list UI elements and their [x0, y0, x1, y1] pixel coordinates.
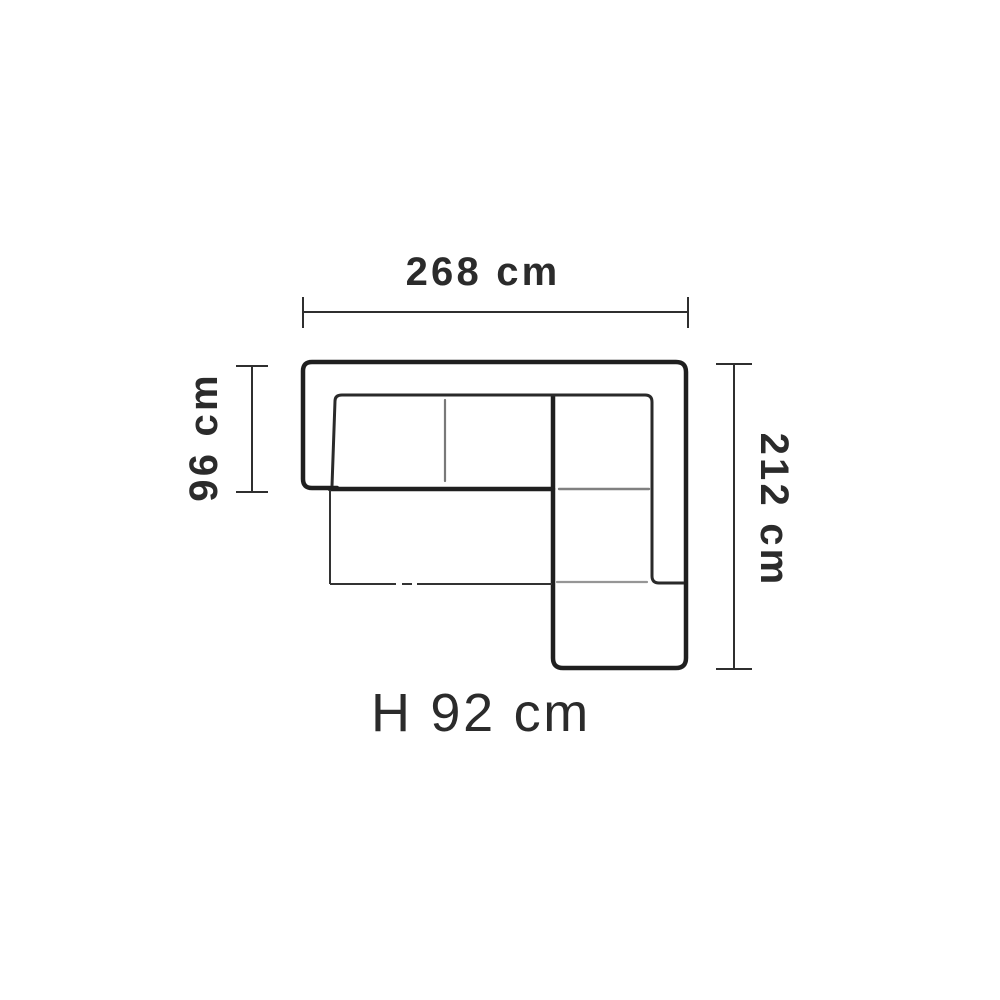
width-dimension-label: 268 cm — [406, 250, 561, 294]
height-dimension-label: H 92 cm — [371, 683, 591, 743]
length-dimension-line — [716, 364, 752, 669]
depth-dimension-label: 96 cm — [182, 372, 226, 501]
depth-dimension-line — [236, 366, 268, 492]
sofa-floorplan-svg: 268 cm 96 cm 212 cm H 92 cm — [0, 0, 1000, 1000]
sofa-dimension-diagram: 268 cm 96 cm 212 cm H 92 cm — [0, 0, 1000, 1000]
dimension-lines-group — [236, 297, 752, 669]
sofa-outer-outline-path — [303, 362, 686, 668]
sofa-outline-group — [303, 362, 686, 668]
length-dimension-label: 212 cm — [752, 433, 796, 588]
width-dimension-line — [303, 297, 688, 328]
